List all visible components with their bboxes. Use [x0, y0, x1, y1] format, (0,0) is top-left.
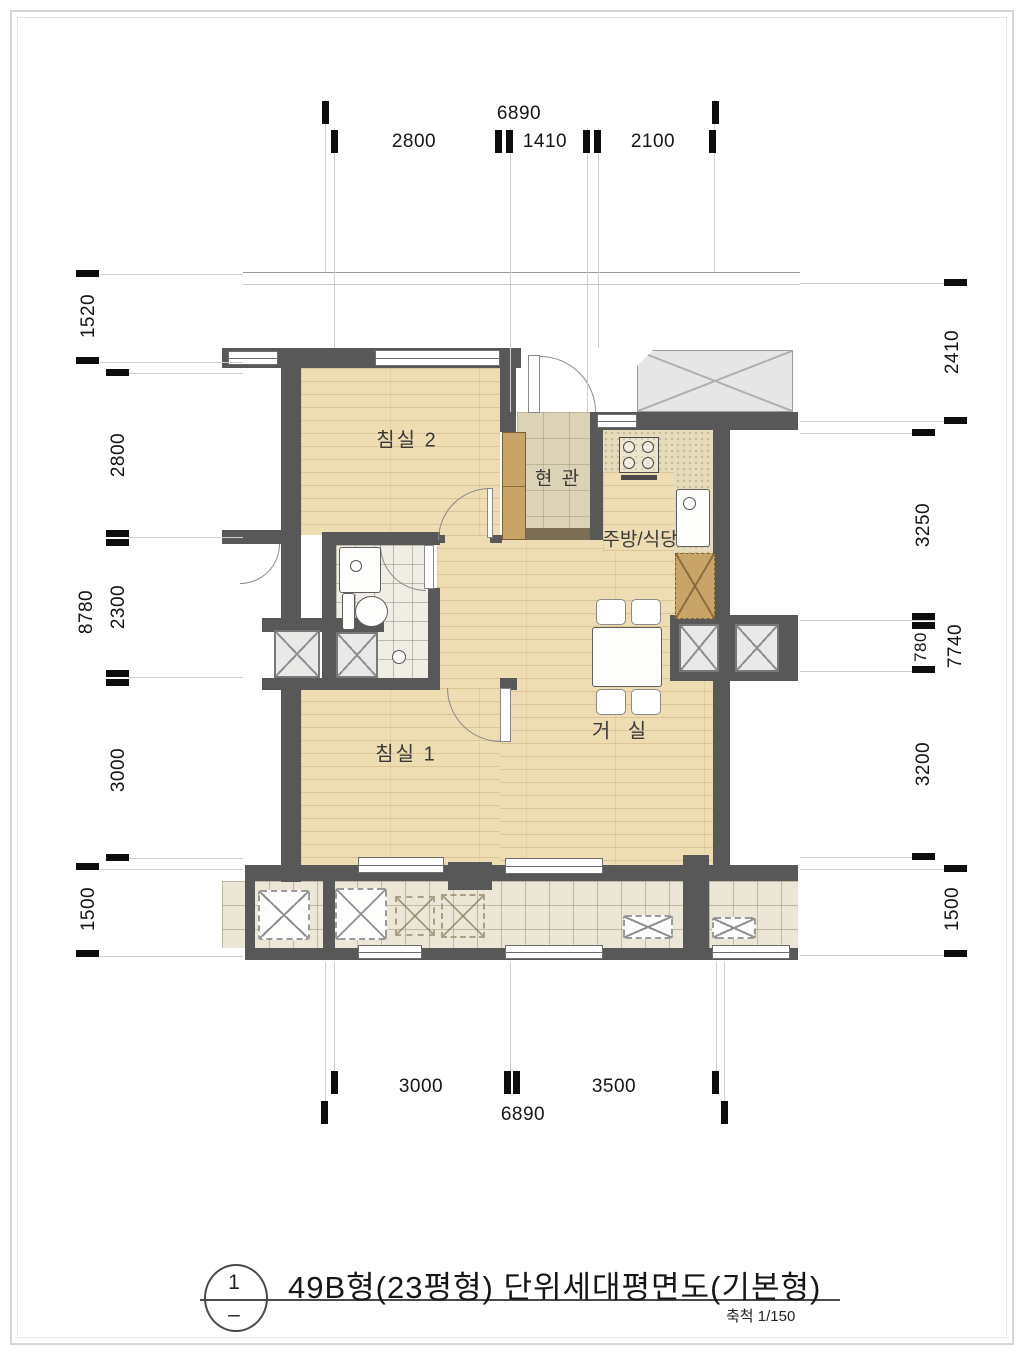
dining-chair-1: [596, 599, 626, 625]
dim-right-outer3: 1500: [942, 887, 964, 931]
duct-left-1: [274, 630, 320, 678]
tick-left-inner-6: [106, 854, 129, 861]
wall-balcony-west-edge: [245, 865, 255, 957]
duct-right-1: [679, 624, 719, 672]
guide-top-5: [598, 128, 599, 348]
wall-balcony-divider-right: [683, 855, 709, 955]
room-label-living: 거 실: [592, 715, 652, 744]
toilet-bowl: [355, 596, 388, 627]
room-label-entrance: 현 관: [535, 464, 581, 491]
refrigerator-cabinet: [675, 553, 715, 619]
wall-balcony-pier: [448, 862, 492, 890]
dining-chair-2: [631, 599, 661, 625]
stove-panel: [621, 475, 657, 480]
guide-left-6: [128, 858, 243, 859]
tick-right-outer-4: [944, 950, 967, 957]
dim-left-outer3: 1500: [78, 887, 100, 931]
corridor-line-2: [243, 284, 800, 285]
tick-top-inner-3: [506, 130, 513, 153]
guide-left-7: [100, 869, 243, 870]
dim-left-inner3: 3000: [108, 748, 130, 792]
guide-right-7: [800, 869, 962, 870]
toilet-tank: [342, 593, 355, 630]
wall-bathroom-bottom: [262, 678, 440, 690]
tick-bottom-outer-2: [721, 1101, 728, 1124]
dim-left-inner2: 2300: [108, 585, 130, 629]
shoe-cabinet: [502, 432, 526, 540]
guide-top-4: [587, 128, 588, 412]
dim-right-inner3: 3200: [913, 742, 935, 786]
dining-chair-3: [596, 689, 626, 715]
duct-left-2: [336, 632, 378, 678]
dim-left-outer1: 1520: [78, 294, 100, 338]
balcony-unit-far-right: [712, 917, 756, 939]
dim-left-inner1: 2800: [108, 433, 130, 477]
guide-left-3: [128, 373, 243, 374]
tick-top-outer-2: [712, 101, 719, 124]
dim-top-seg2: 1410: [523, 131, 567, 153]
dim-top-seg1: 2800: [392, 131, 436, 153]
kitchen-faucet: [683, 497, 696, 510]
dim-right-inner2: 780: [911, 632, 931, 662]
neighbor-door-arc: [240, 544, 280, 584]
tick-top-inner-4: [583, 130, 590, 153]
guide-left-8: [100, 956, 243, 957]
wall-balcony-divider-left: [323, 881, 335, 948]
dim-left-outer2: 8780: [76, 590, 98, 634]
tick-top-outer-1: [322, 101, 329, 124]
dim-right-outer1: 2410: [942, 330, 964, 374]
tick-left-outer-1: [76, 270, 99, 277]
drawing-number: 1: [228, 1271, 240, 1295]
room-label-bedroom1: 침실 1: [375, 738, 436, 767]
wall-bathroom-east: [428, 588, 440, 678]
stove-burner-1: [623, 441, 635, 453]
stove-burner-4: [642, 457, 654, 469]
balcony-unit-left: [258, 890, 310, 940]
window-balcony-1: [358, 945, 422, 959]
drawing-scale: 축척 1/150: [726, 1305, 795, 1326]
stove-burner-2: [642, 441, 654, 453]
guide-top-1: [325, 100, 326, 272]
tick-left-inner-2: [106, 530, 129, 537]
tick-left-outer-2: [76, 357, 99, 364]
balcony-unit-main: [335, 888, 387, 940]
bedroom1-door-leaf: [500, 688, 511, 742]
tick-top-inner-5: [594, 130, 601, 153]
dim-bottom-seg2: 3500: [592, 1076, 636, 1098]
dining-table: [592, 627, 662, 687]
tick-left-inner-1: [106, 369, 129, 376]
tick-bottom-outer-1: [321, 1101, 328, 1124]
guide-right-2: [800, 421, 962, 422]
room-label-kitchen: 주방/식당: [602, 525, 677, 552]
wall-living-east: [713, 677, 730, 865]
tick-right-outer-3: [944, 865, 967, 872]
wall-bathroom-top: [322, 532, 440, 545]
tick-right-outer-2: [944, 417, 967, 424]
wall-kitchen-west: [590, 430, 603, 540]
guide-top-3: [510, 128, 511, 412]
tick-top-inner-6: [709, 130, 716, 153]
window-kitchen: [597, 414, 637, 428]
guide-left-2: [100, 362, 243, 363]
wall-spine-upper: [500, 368, 516, 432]
dim-bottom-seg1: 3000: [399, 1076, 443, 1098]
tick-bottom-inner-4: [712, 1071, 719, 1094]
tick-bottom-inner-3: [513, 1071, 520, 1094]
tick-right-outer-1: [944, 279, 967, 286]
tick-bottom-inner-2: [504, 1071, 511, 1094]
guide-right-4: [800, 620, 935, 621]
tick-top-inner-2: [495, 130, 502, 153]
entrance-step: [517, 528, 590, 540]
tick-right-inner-1: [912, 429, 935, 436]
window-balcony-right: [712, 945, 790, 959]
window-bedroom2: [375, 350, 500, 366]
balcony-far-left-floor: [222, 881, 245, 948]
tick-bottom-inner-1: [331, 1071, 338, 1094]
drawing-number-sub: –: [228, 1303, 240, 1327]
dim-top-seg3: 2100: [631, 131, 675, 153]
tick-right-inner-2: [912, 613, 935, 620]
tick-right-inner-3: [912, 622, 935, 629]
dim-bottom-total: 6890: [501, 1104, 545, 1126]
window-balcony-2: [505, 945, 603, 959]
guide-left-5: [128, 677, 243, 678]
guide-left-4: [128, 537, 243, 538]
tick-right-inner-4: [912, 666, 935, 673]
guide-bottom-4: [325, 962, 326, 1122]
entrance-door-leaf: [528, 355, 540, 413]
drawing-sheet: 침실 2 현 관 주방/식당 침실 1 거 실 6890 2800 1410 2…: [0, 0, 1024, 1355]
balcony-dashed-box-1: [395, 896, 435, 936]
tick-left-outer-3: [76, 863, 99, 870]
tick-left-inner-3: [106, 539, 129, 546]
stove-burner-3: [623, 457, 635, 469]
elevator-hall-box: [637, 350, 793, 412]
bathroom-faucet: [350, 560, 362, 572]
dining-chair-4: [631, 689, 661, 715]
tick-left-inner-5: [106, 679, 129, 686]
tick-left-inner-4: [106, 670, 129, 677]
balcony-dashed-box-2: [441, 894, 485, 938]
tick-right-inner-5: [912, 853, 935, 860]
guide-right-1: [800, 283, 962, 284]
dim-right-outer2: 7740: [945, 624, 967, 668]
floor-drain: [392, 650, 406, 664]
corridor-line-1: [243, 272, 800, 273]
guide-left-1: [100, 274, 243, 275]
guide-top-6: [714, 100, 715, 272]
tick-top-inner-1: [331, 130, 338, 153]
guide-right-8: [800, 955, 962, 956]
balcony-unit-right: [623, 915, 673, 939]
floor-plan: [0, 0, 1024, 1355]
wall-bathroom-west: [322, 545, 336, 678]
dim-top-total: 6890: [497, 103, 541, 125]
guide-top-2: [334, 128, 335, 348]
window-living: [505, 858, 603, 874]
tick-left-outer-4: [76, 950, 99, 957]
drawing-title: 49B형(23평형) 단위세대평면도(기본형): [288, 1262, 821, 1307]
dim-right-inner1: 3250: [913, 503, 935, 547]
duct-right-2: [735, 624, 779, 672]
guide-bottom-5: [724, 962, 725, 1122]
window-bedroom1: [358, 857, 444, 873]
room-label-bedroom2: 침실 2: [376, 424, 437, 453]
